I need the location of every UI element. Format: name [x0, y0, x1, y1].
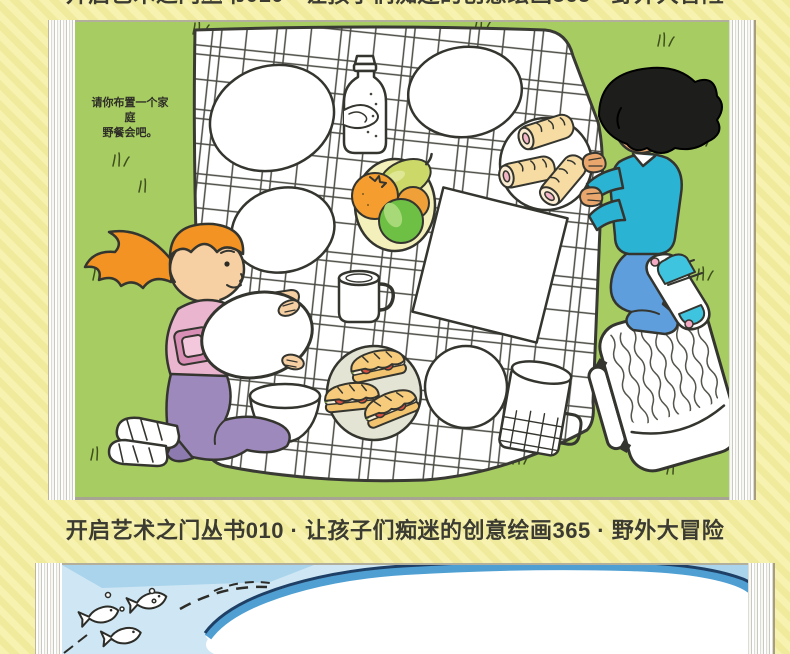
page-edge-right — [746, 563, 775, 654]
activity-prompt: 请你布置一个家庭 野餐会吧。 — [87, 96, 173, 141]
page-edge-right — [727, 20, 756, 500]
underwater-page-content — [62, 563, 748, 654]
page-edge-left — [35, 563, 63, 654]
girl-ponytail — [85, 231, 173, 288]
boy-hair — [599, 68, 722, 153]
picnic-page: 请你布置一个家庭 野餐会吧。 — [48, 20, 756, 500]
underwater-page — [35, 563, 775, 654]
top-caption-text: 开启艺术之门丛书010 · 让孩子们痴迷的创意绘画365 · 野外大冒险 — [0, 0, 790, 7]
book-product-photo: 开启艺术之门丛书010 · 让孩子们痴迷的创意绘画365 · 野外大冒险 — [0, 0, 790, 654]
series-title-caption: 开启艺术之门丛书010 · 让孩子们痴迷的创意绘画365 · 野外大冒险 — [0, 513, 790, 545]
fish-school — [64, 589, 168, 654]
fish — [79, 603, 121, 628]
picnic-page-content: 请你布置一个家庭 野餐会吧。 — [75, 20, 729, 500]
fish — [101, 625, 142, 648]
boy-figure — [580, 68, 722, 334]
fish — [127, 589, 169, 614]
page-edge-left — [48, 20, 76, 500]
activity-prompt-line2: 野餐会吧。 — [87, 126, 173, 141]
whale-outline — [205, 565, 748, 654]
underwater-scene-illustration — [62, 565, 748, 654]
activity-prompt-line1: 请你布置一个家庭 — [87, 96, 173, 126]
picnic-scene-illustration — [75, 22, 729, 497]
round-plate — [425, 346, 507, 428]
top-caption-clipped: 开启艺术之门丛书010 · 让孩子们痴迷的创意绘画365 · 野外大冒险 — [0, 0, 790, 8]
